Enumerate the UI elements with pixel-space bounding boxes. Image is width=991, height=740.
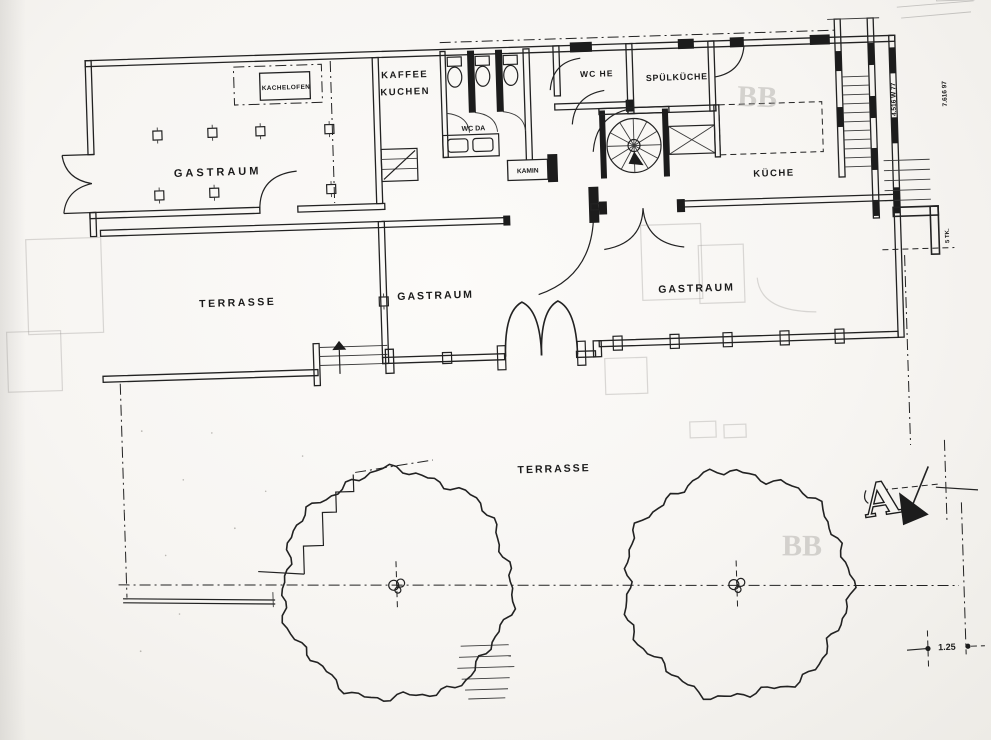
stall-divider xyxy=(495,50,504,112)
label-room-gastraum-right: GASTRAUM xyxy=(658,281,735,295)
stall-divider xyxy=(467,51,476,113)
chimney-block xyxy=(547,154,558,182)
garden-steps-icon xyxy=(255,460,436,576)
wall-pier-icon xyxy=(730,37,744,47)
door-swing-icon xyxy=(259,171,298,210)
door-swing-icon xyxy=(536,221,595,295)
wall-pier-icon xyxy=(891,117,898,143)
stair-treads xyxy=(842,76,872,167)
terrace-upper-zone xyxy=(3,187,611,602)
scan-speckle xyxy=(121,425,310,652)
room-gastraum-right xyxy=(591,192,901,441)
wall-pier-icon xyxy=(678,39,694,49)
column-icon xyxy=(613,336,622,350)
pointed-double-door-icon xyxy=(496,300,586,370)
west-wall-upper xyxy=(85,61,94,155)
axis-line-top xyxy=(440,30,835,42)
label-room-gastraum-mid: GASTRAUM xyxy=(397,289,474,303)
south-wall-a2 xyxy=(298,203,385,212)
east-wall xyxy=(889,35,904,337)
label-ghost-bb-bottom: BB xyxy=(782,529,822,562)
label-kamin: KAMIN xyxy=(517,168,539,176)
terrace-lower-zone xyxy=(114,405,963,718)
mid-west-wall xyxy=(378,221,388,363)
tree-trunk-icon xyxy=(728,560,745,608)
double-door-icon xyxy=(62,154,96,213)
floor-plan: A GASTRAUMKACHELOFENKAFFEEKUCHENWC DAWC … xyxy=(0,0,991,740)
label-dim-1: 4.516 W 77 xyxy=(890,82,898,116)
label-ghost-bb-top: BB xyxy=(737,80,778,115)
label-dim-2: 7.616 97 xyxy=(941,81,949,107)
label-wc-da: WC DA xyxy=(461,125,485,133)
survey-lines-right: A xyxy=(852,253,986,669)
door-post xyxy=(599,201,607,214)
spk-east-wall xyxy=(708,41,716,111)
column-grid xyxy=(153,121,336,204)
section-letter: A xyxy=(859,469,905,528)
small-stair-icon xyxy=(381,148,418,181)
toilet-icon xyxy=(475,56,490,86)
south-wall-a1 xyxy=(90,207,260,218)
scanned-floor-plan-page: A GASTRAUMKACHELOFENKAFFEEKUCHENWC DAWC … xyxy=(0,0,991,740)
mid-south-wall-1 xyxy=(383,354,505,364)
door-swing-icon xyxy=(643,207,684,248)
right-south-wall xyxy=(599,331,898,346)
column-icon xyxy=(670,334,679,348)
room-gastraum-left xyxy=(59,59,385,219)
label-spuelkueche: SPÜLKÜCHE xyxy=(646,71,708,83)
label-scale-note: 1.25 xyxy=(938,642,956,653)
section-marker-a: A xyxy=(859,466,931,528)
wall-pier-icon xyxy=(889,47,896,73)
wall-jog xyxy=(593,341,601,357)
stairs-top-right xyxy=(826,0,982,257)
tree-icon xyxy=(620,465,860,702)
terrace-south-wall xyxy=(103,370,318,383)
plan-labels: GASTRAUMKACHELOFENKAFFEEKUCHENWC DAWC HE… xyxy=(171,53,966,676)
door-post xyxy=(677,199,685,212)
building-outline xyxy=(85,28,904,362)
door-swing-icon xyxy=(603,208,644,249)
wall-pier-icon xyxy=(570,42,592,53)
landing-wall xyxy=(930,206,940,254)
toilet-icon xyxy=(447,57,462,87)
toilet-icon xyxy=(503,55,518,85)
column-icon xyxy=(780,331,789,345)
stair-direction-arrow xyxy=(628,151,643,165)
north-wall xyxy=(85,35,895,66)
right-north-wall xyxy=(683,194,894,207)
wall-pier-icon xyxy=(810,34,830,45)
label-kueche: KÜCHE xyxy=(753,167,795,179)
spk-south-wall xyxy=(628,105,716,114)
label-kaffee: KAFFEE xyxy=(381,69,428,81)
label-kuchen: KUCHEN xyxy=(380,86,430,99)
west-wall-lower xyxy=(90,212,97,236)
wall-post xyxy=(588,187,599,223)
door-swing-icon xyxy=(714,46,745,77)
column-icon xyxy=(723,333,732,347)
sink-unit-icon xyxy=(443,134,500,158)
garden-steps-icon-2 xyxy=(457,645,516,700)
label-dim-3: 5 TK. xyxy=(945,228,951,243)
site-boundary-dash xyxy=(120,384,127,598)
door-swing-icon xyxy=(503,111,526,132)
label-wc-he: WC HE xyxy=(580,68,614,79)
ghost-plan-bleed xyxy=(4,237,106,392)
wc-block xyxy=(440,49,532,164)
column-icon xyxy=(835,329,844,343)
label-room-gastraum-left: GASTRAUM xyxy=(174,165,262,180)
section-arrow-icon xyxy=(899,491,929,525)
label-terrasse-upper: TERRASSE xyxy=(199,296,277,310)
wc-west-wall xyxy=(440,51,448,157)
label-terrasse-lower: TERRASSE xyxy=(517,462,591,476)
wc-he-south-wall xyxy=(555,102,632,110)
door-post xyxy=(503,215,510,225)
wc-east-wall xyxy=(523,49,533,161)
corner-smudge xyxy=(896,0,975,18)
tree-trunk-icon xyxy=(388,561,405,609)
terrace-north-wall xyxy=(100,218,507,237)
